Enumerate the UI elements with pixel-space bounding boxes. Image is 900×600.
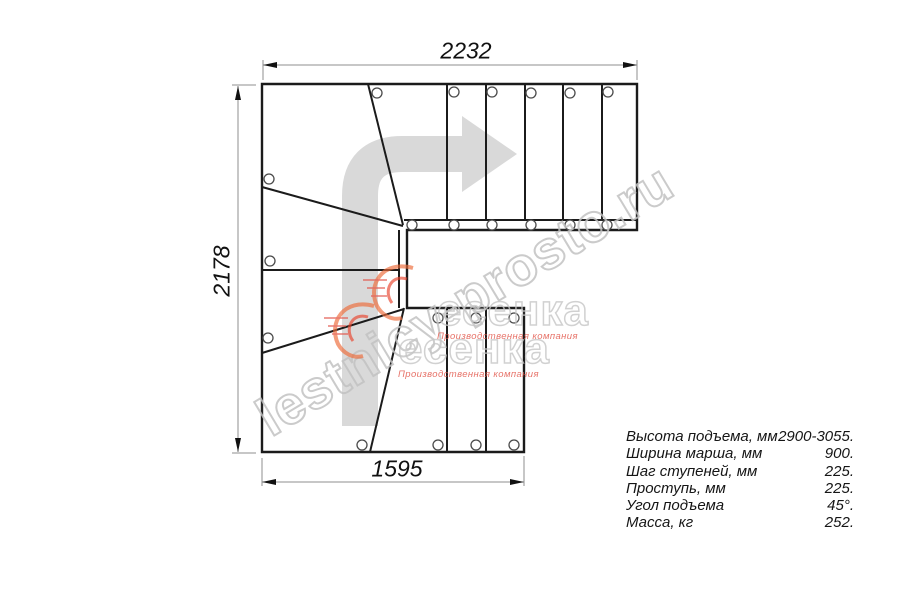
spec-table: Высота подъема, мм 2900-3055. Ширина мар… xyxy=(626,428,854,532)
spec-row: Масса, кг 252. xyxy=(626,514,854,531)
spec-label: Масса, кг xyxy=(626,514,693,531)
spec-value: 252. xyxy=(825,514,854,531)
spec-row: Проступь, мм 225. xyxy=(626,480,854,497)
dimension-left-label: 2178 xyxy=(209,245,236,296)
spec-label: Шаг ступеней, мм xyxy=(626,463,757,480)
spec-row: Шаг ступеней, мм 225. xyxy=(626,463,854,480)
staircase-plan-canvas: lestnicy-prosto.ru есенка Производственн… xyxy=(0,0,900,600)
spec-value: 2900-3055. xyxy=(778,428,854,445)
spec-label: Ширина марша, мм xyxy=(626,445,762,462)
spec-row: Высота подъема, мм 2900-3055. xyxy=(626,428,854,445)
spec-label: Угол подъема xyxy=(626,497,724,514)
spec-label: Проступь, мм xyxy=(626,480,726,497)
spec-value: 900. xyxy=(825,445,854,462)
spec-label: Высота подъема, мм xyxy=(626,428,778,445)
spec-value: 225. xyxy=(825,480,854,497)
spec-row: Угол подъема 45°. xyxy=(626,497,854,514)
dimension-arrowheads xyxy=(235,62,637,485)
dimension-bottom-label: 1595 xyxy=(371,456,422,483)
dimension-lines xyxy=(232,60,637,486)
spec-value: 225. xyxy=(825,463,854,480)
spec-row: Ширина марша, мм 900. xyxy=(626,445,854,462)
dimension-top-label: 2232 xyxy=(440,38,491,65)
spec-value: 45°. xyxy=(827,497,854,514)
